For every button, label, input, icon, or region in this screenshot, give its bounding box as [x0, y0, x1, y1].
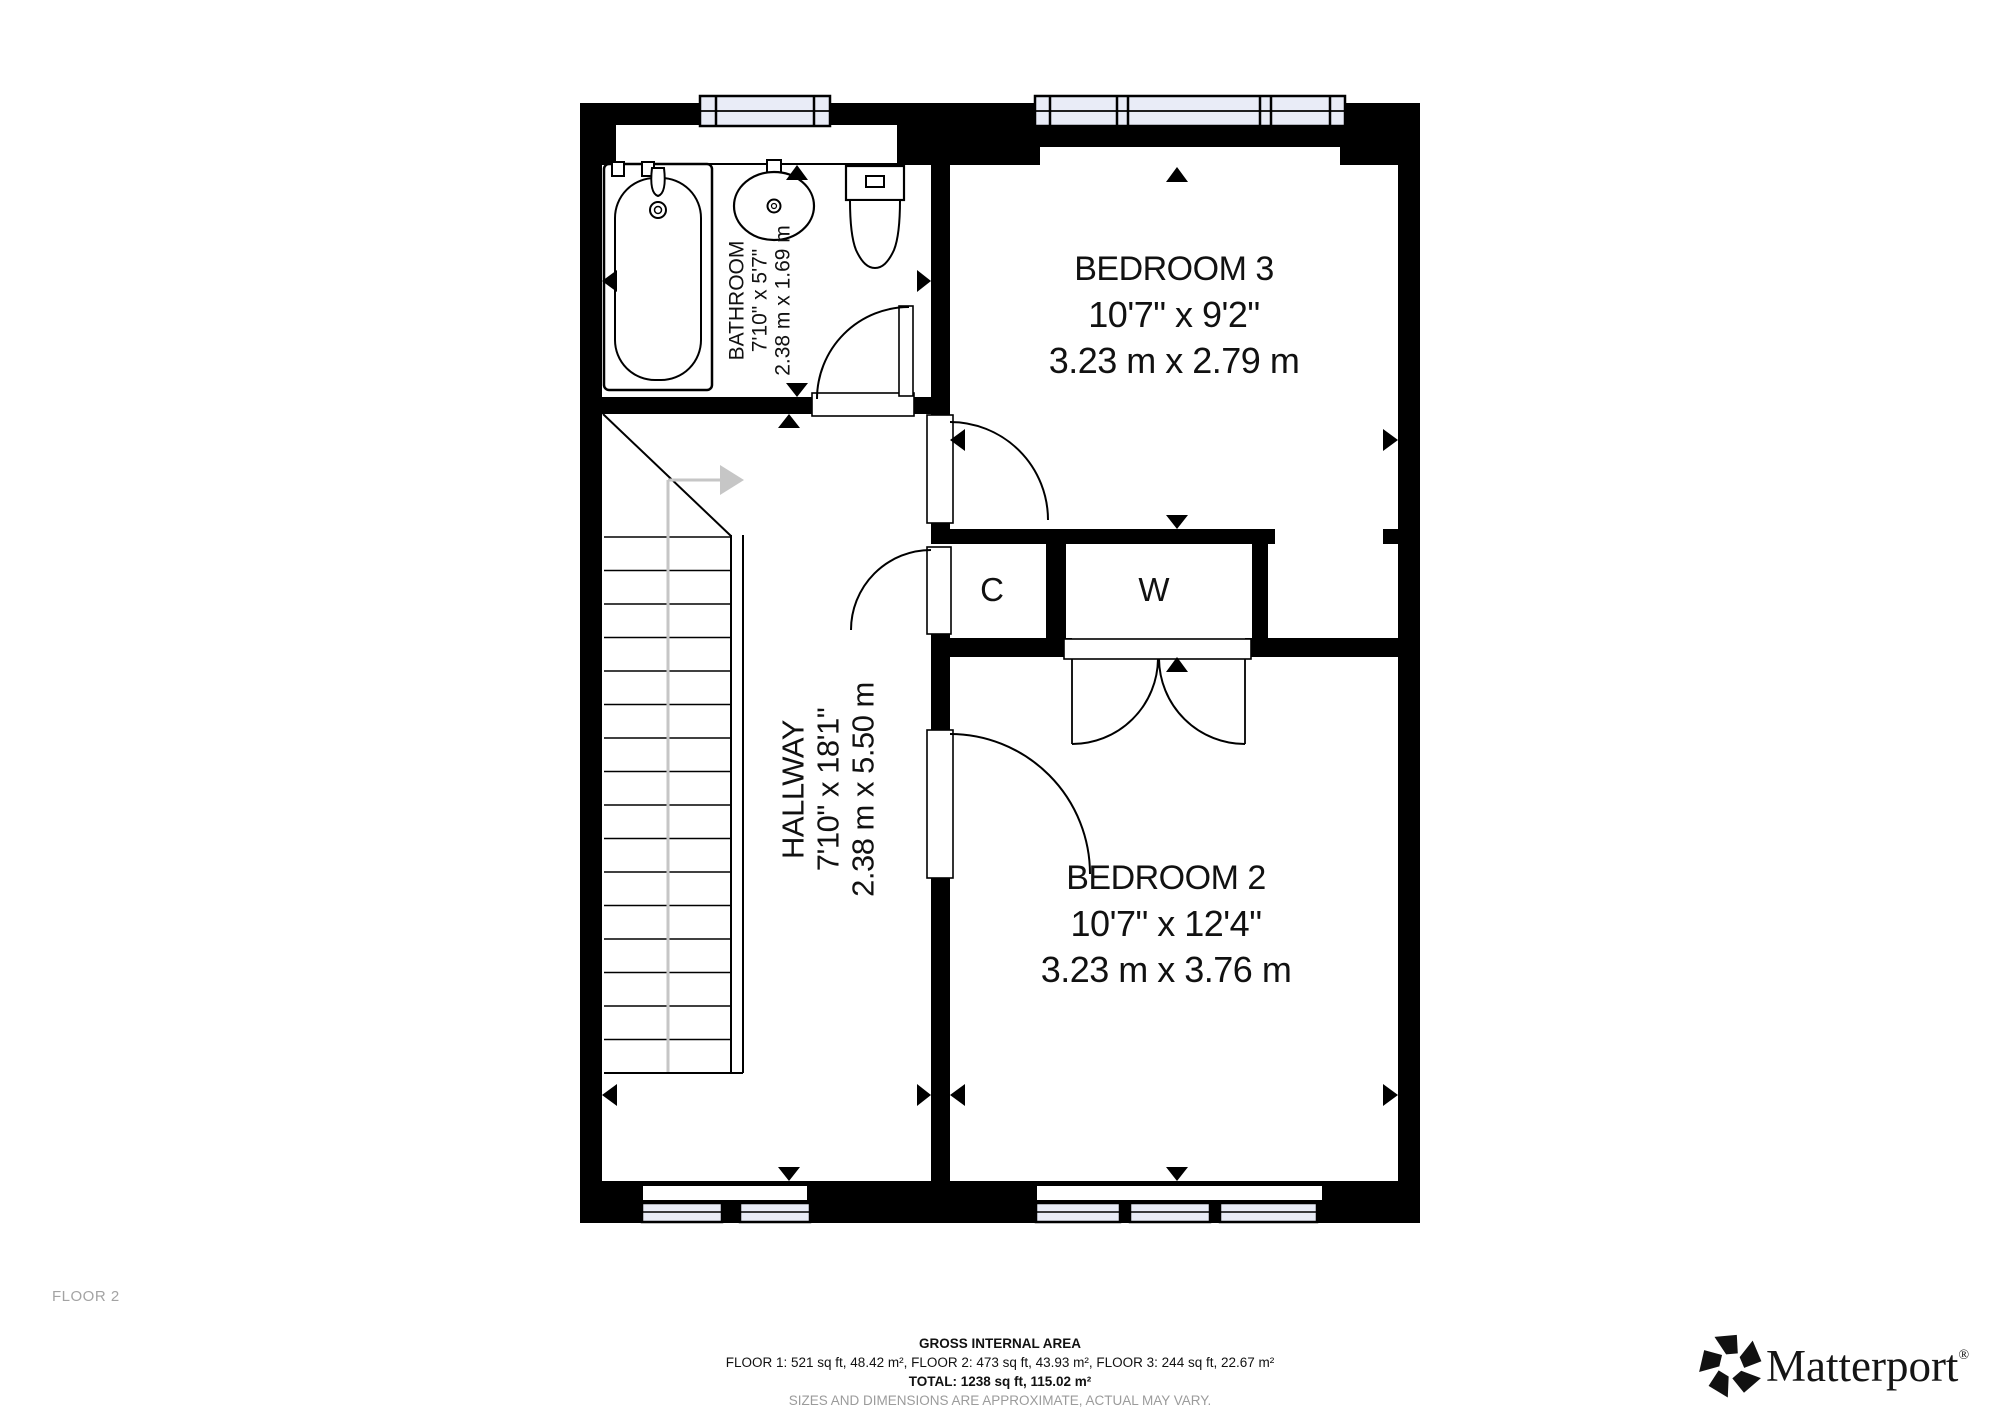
bathtub [604, 162, 712, 390]
window-bathroom [700, 96, 830, 126]
wall-bathroom-right [931, 103, 950, 418]
room-dim-imperial: 7'10" x 18'1" [811, 680, 846, 900]
wall-closets-bottom-left [931, 638, 1072, 657]
stair-arrow-icon [720, 465, 744, 495]
bathroom-vanity-recess [616, 125, 897, 163]
bathtub-faucet-icon [651, 168, 665, 196]
closet-label-c: C [962, 573, 1022, 606]
arrow-right-icon [917, 270, 931, 292]
window-bedroom3 [1035, 96, 1345, 126]
wall-bathroom-bottom-left [602, 397, 817, 414]
room-name: BATHROOM [726, 216, 749, 386]
room-dim-metric: 3.23 m x 2.79 m [964, 338, 1384, 384]
room-label-bathroom: BATHROOM 7'10" x 5'7" 2.38 m x 1.69 m [726, 216, 795, 386]
brand-name: Matterport [1766, 1341, 1958, 1391]
wall-hall-mid [931, 632, 950, 734]
floorplan-drawing [0, 0, 2000, 1414]
room-dim-metric: 2.38 m x 1.69 m [772, 216, 795, 386]
arrow-right-icon [1383, 429, 1398, 451]
toilet [846, 166, 904, 268]
arrow-right-icon [917, 1084, 931, 1106]
wall-stub-right [1383, 529, 1398, 544]
arrow-down-icon [1166, 515, 1188, 529]
door-bathroom [812, 306, 914, 416]
arrow-left-icon [950, 1084, 965, 1106]
arrow-up-icon [786, 165, 808, 180]
arrow-up-icon [1166, 167, 1188, 182]
closet-label-w: W [1124, 573, 1184, 606]
door-bedroom3 [927, 415, 1048, 523]
door-closet-c [851, 547, 951, 634]
floor-label: FLOOR 2 [52, 1288, 120, 1305]
room-name: BEDROOM 2 [956, 856, 1376, 901]
wall-hall-bedroom2 [931, 874, 950, 1181]
matterport-logo: Matterport® [1698, 1330, 1988, 1400]
matterport-pinwheel-icon [1698, 1330, 1764, 1400]
room-dim-imperial: 10'7" x 12'4" [956, 901, 1376, 947]
staircase [603, 414, 744, 1073]
registered-mark: ® [1958, 1348, 1969, 1363]
room-label-bedroom3: BEDROOM 3 10'7" x 9'2" 3.23 m x 2.79 m [964, 247, 1384, 384]
arrow-up-icon [778, 414, 800, 428]
wall-closets-bottom-right [1245, 638, 1420, 657]
wall-left [580, 103, 602, 1223]
door-closet-w-double [1064, 639, 1251, 744]
arrow-left-icon [602, 1084, 617, 1106]
wall-right [1398, 103, 1420, 1223]
wall-closets-top [931, 529, 1275, 544]
room-name: HALLWAY [776, 680, 811, 900]
wall-closet-w-right [1252, 529, 1268, 657]
arrow-down-icon [778, 1167, 800, 1181]
arrow-down-icon [1166, 1167, 1188, 1181]
room-name: BEDROOM 3 [964, 247, 1384, 292]
window-bedroom2-bottom [1036, 1185, 1323, 1222]
room-label-hallway: HALLWAY 7'10" x 18'1" 2.38 m x 5.50 m [776, 680, 881, 900]
arrow-right-icon [1383, 1084, 1398, 1106]
stair-direction [668, 465, 744, 1072]
room-dim-metric: 2.38 m x 5.50 m [846, 680, 881, 900]
room-dim-imperial: 7'10" x 5'7" [749, 216, 772, 386]
matterport-wordmark: Matterport® [1766, 1340, 1969, 1392]
room-dim-metric: 3.23 m x 3.76 m [956, 947, 1376, 993]
room-label-bedroom2: BEDROOM 2 10'7" x 12'4" 3.23 m x 3.76 m [956, 856, 1376, 993]
floorplan-page: { "plan": { "rooms": { "bathroom": {"nam… [0, 0, 2000, 1414]
room-dim-imperial: 10'7" x 9'2" [964, 292, 1384, 338]
wall-closet-divider [1046, 529, 1066, 657]
bedroom3-window-sill [1040, 147, 1340, 165]
